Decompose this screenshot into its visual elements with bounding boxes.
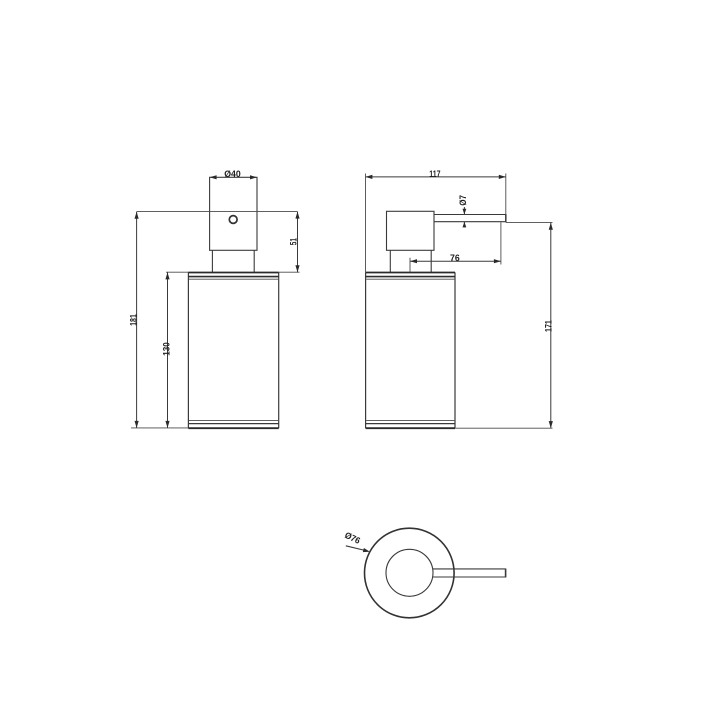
svg-text:Ø7: Ø7 (458, 195, 469, 206)
svg-text:Ø40: Ø40 (224, 169, 241, 179)
svg-text:51: 51 (288, 237, 298, 245)
svg-text:76: 76 (450, 253, 460, 263)
svg-text:117: 117 (429, 169, 441, 179)
svg-text:171: 171 (544, 320, 554, 332)
svg-text:130: 130 (161, 342, 172, 356)
svg-text:181: 181 (129, 314, 139, 326)
